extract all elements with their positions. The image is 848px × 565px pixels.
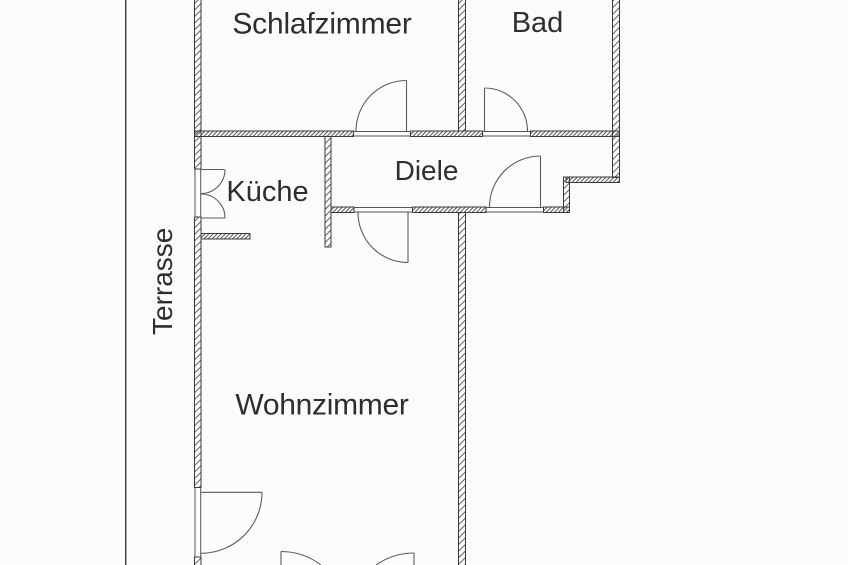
svg-text:Terrasse: Terrasse bbox=[147, 228, 178, 335]
svg-text:Schlafzimmer: Schlafzimmer bbox=[232, 8, 412, 41]
svg-text:Bad: Bad bbox=[512, 7, 564, 39]
svg-text:Wohnzimmer: Wohnzimmer bbox=[235, 389, 408, 422]
svg-text:Küche: Küche bbox=[226, 176, 308, 208]
svg-text:Diele: Diele bbox=[395, 155, 459, 186]
